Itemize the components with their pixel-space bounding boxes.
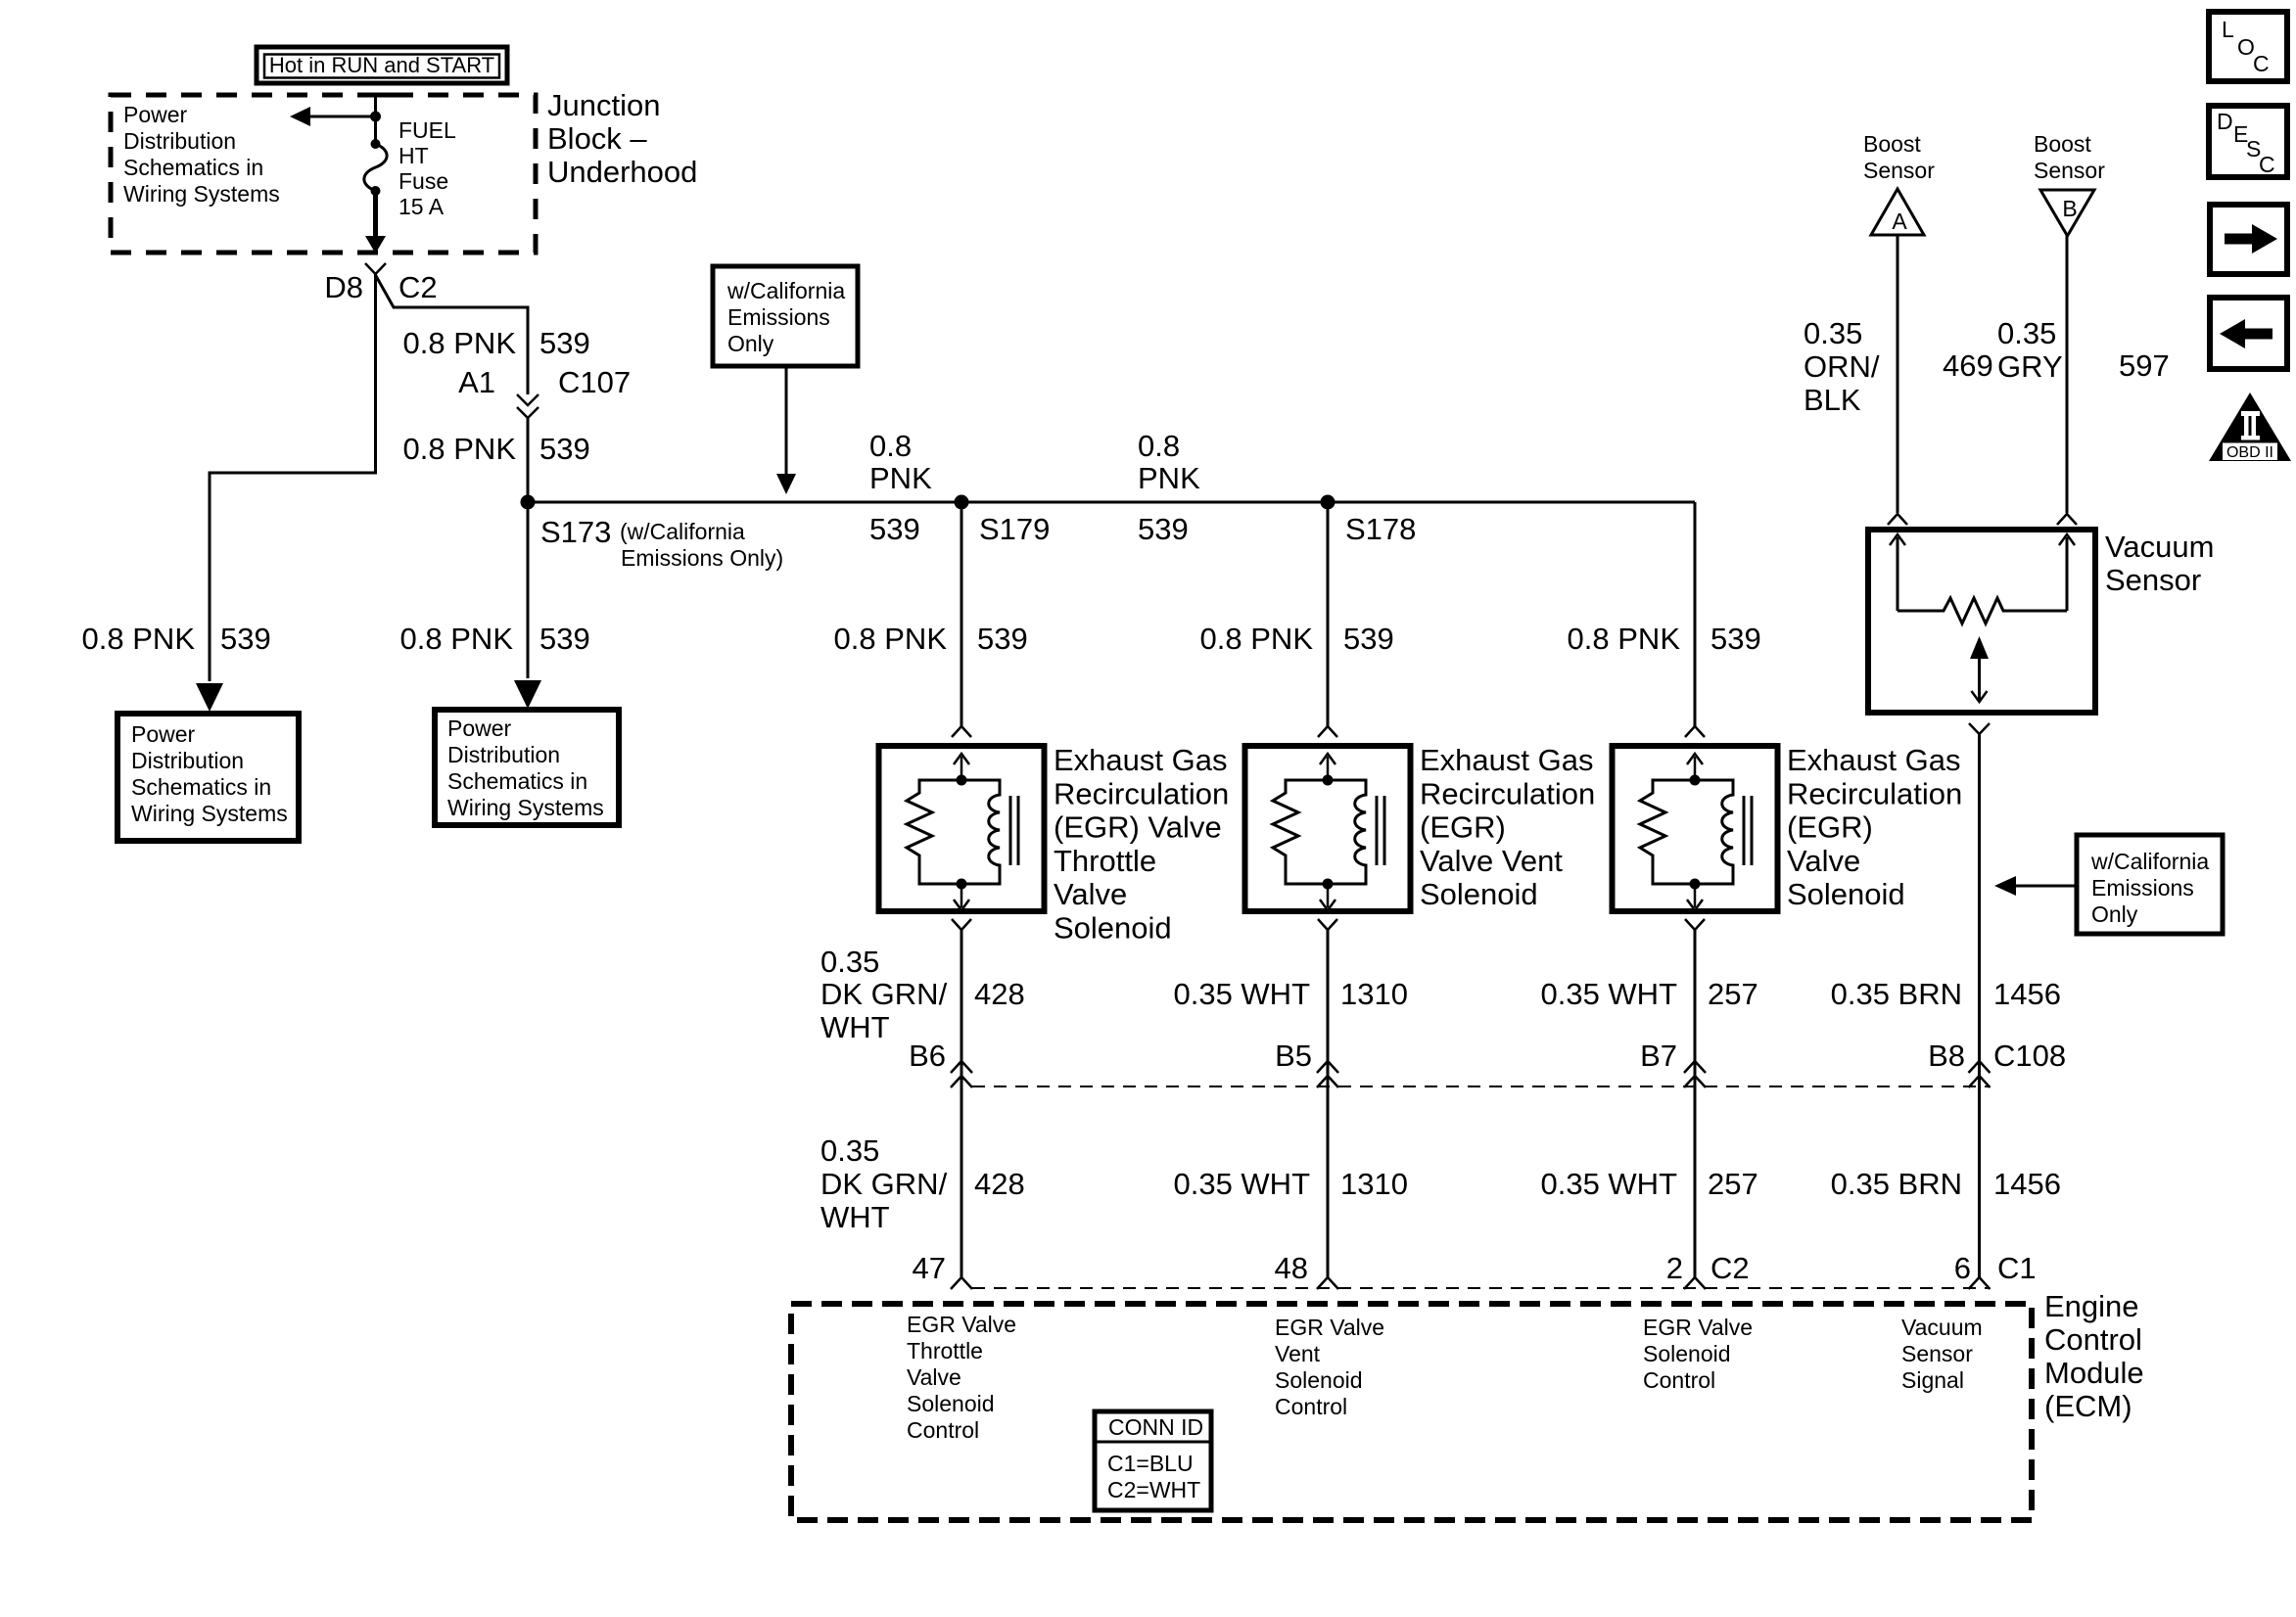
svg-text:Module: Module [2044, 1356, 2144, 1390]
svg-text:Boost: Boost [2034, 131, 2091, 157]
svg-text:A: A [1892, 208, 1907, 234]
svg-text:B6: B6 [909, 1039, 946, 1073]
svg-text:0.8: 0.8 [1138, 429, 1180, 463]
svg-text:C107: C107 [558, 365, 631, 399]
svg-text:539: 539 [1710, 622, 1761, 656]
svg-text:B7: B7 [1640, 1039, 1677, 1073]
svg-text:539: 539 [1138, 512, 1189, 546]
svg-text:Exhaust Gas: Exhaust Gas [1787, 743, 1960, 777]
svg-text:1310: 1310 [1340, 1167, 1408, 1201]
svg-text:0.8 PNK: 0.8 PNK [1568, 622, 1681, 656]
svg-text:OBD II: OBD II [2226, 444, 2273, 461]
svg-text:S173: S173 [540, 515, 611, 549]
svg-text:0.35: 0.35 [1804, 316, 1862, 350]
svg-text:0.8 PNK: 0.8 PNK [403, 326, 517, 360]
svg-text:C1: C1 [1997, 1251, 2037, 1285]
svg-text:Wiring Systems: Wiring Systems [123, 181, 280, 207]
svg-text:C: C [2259, 152, 2275, 177]
svg-text:539: 539 [977, 622, 1028, 656]
svg-text:Recirculation: Recirculation [1420, 776, 1595, 810]
svg-text:469: 469 [1943, 348, 1993, 383]
svg-text:Control: Control [1643, 1367, 1715, 1393]
svg-text:C1=BLU: C1=BLU [1107, 1451, 1194, 1476]
svg-text:Block –: Block – [547, 121, 647, 156]
svg-text:Distribution: Distribution [123, 128, 236, 154]
svg-text:Vacuum: Vacuum [2105, 530, 2214, 564]
svg-text:Only: Only [2091, 901, 2138, 927]
svg-text:15 A: 15 A [398, 194, 445, 219]
svg-text:Underhood: Underhood [547, 155, 697, 189]
svg-text:0.8: 0.8 [869, 429, 912, 463]
svg-text:C2=WHT: C2=WHT [1107, 1477, 1200, 1502]
svg-text:0.35: 0.35 [1997, 316, 2056, 350]
svg-text:Vent: Vent [1275, 1341, 1321, 1366]
svg-text:Exhaust Gas: Exhaust Gas [1054, 743, 1227, 777]
svg-text:Sensor: Sensor [1863, 158, 1935, 183]
svg-text:B: B [2062, 196, 2077, 221]
svg-text:Valve: Valve [1787, 844, 1860, 878]
svg-text:EGR Valve: EGR Valve [1643, 1315, 1753, 1340]
svg-text:Signal: Signal [1901, 1367, 1964, 1393]
svg-text:6: 6 [1954, 1251, 1971, 1285]
svg-text:Schematics in: Schematics in [123, 155, 263, 180]
svg-text:C2: C2 [398, 270, 438, 304]
svg-text:Schematics in: Schematics in [447, 768, 587, 794]
svg-text:Sensor: Sensor [2105, 563, 2201, 597]
svg-text:Sensor: Sensor [2034, 158, 2105, 183]
svg-text:428: 428 [974, 1167, 1025, 1201]
svg-text:BLK: BLK [1804, 383, 1861, 417]
svg-text:WHT: WHT [820, 1200, 890, 1234]
svg-text:Schematics in: Schematics in [131, 774, 271, 800]
svg-text:ORN/: ORN/ [1804, 349, 1880, 384]
svg-text:EGR Valve: EGR Valve [907, 1312, 1016, 1337]
svg-text:539: 539 [539, 622, 590, 656]
svg-text:Solenoid: Solenoid [1054, 911, 1172, 946]
svg-text:0.8 PNK: 0.8 PNK [400, 622, 514, 656]
svg-text:0.35 WHT: 0.35 WHT [1173, 1167, 1310, 1201]
svg-text:FUEL: FUEL [398, 117, 456, 143]
svg-text:C: C [2253, 51, 2270, 76]
svg-text:w/California: w/California [726, 278, 845, 303]
svg-text:S179: S179 [979, 512, 1050, 546]
svg-text:Wiring Systems: Wiring Systems [447, 795, 604, 820]
svg-text:539: 539 [220, 622, 271, 656]
svg-text:257: 257 [1708, 977, 1758, 1011]
svg-text:EGR Valve: EGR Valve [1275, 1315, 1384, 1340]
svg-text:0.35 WHT: 0.35 WHT [1540, 1167, 1677, 1201]
svg-text:B5: B5 [1275, 1039, 1312, 1073]
svg-text:Valve: Valve [907, 1364, 961, 1390]
svg-text:47: 47 [913, 1251, 946, 1285]
svg-text:Distribution: Distribution [131, 748, 244, 773]
svg-text:Throttle: Throttle [1054, 844, 1156, 878]
svg-text:1456: 1456 [1993, 1167, 2061, 1201]
svg-text:0.35 WHT: 0.35 WHT [1540, 977, 1677, 1011]
svg-text:CONN ID: CONN ID [1108, 1414, 1203, 1440]
svg-text:428: 428 [974, 977, 1025, 1011]
svg-text:Distribution: Distribution [447, 742, 560, 767]
svg-text:Solenoid: Solenoid [907, 1391, 995, 1416]
svg-text:Power: Power [123, 102, 188, 127]
svg-text:(EGR): (EGR) [1787, 810, 1873, 845]
svg-text:539: 539 [869, 512, 920, 546]
svg-text:Control: Control [2044, 1322, 2142, 1357]
svg-text:539: 539 [539, 326, 590, 360]
svg-text:Boost: Boost [1863, 131, 1921, 157]
svg-text:539: 539 [1343, 622, 1394, 656]
svg-text:Recirculation: Recirculation [1787, 776, 1962, 810]
svg-text:0.8 PNK: 0.8 PNK [403, 432, 517, 466]
svg-text:Solenoid: Solenoid [1420, 877, 1538, 911]
svg-text:Recirculation: Recirculation [1054, 776, 1229, 810]
svg-text:L: L [2222, 17, 2234, 42]
svg-text:257: 257 [1708, 1167, 1758, 1201]
svg-text:Solenoid: Solenoid [1643, 1341, 1731, 1366]
svg-text:PNK: PNK [869, 461, 932, 495]
svg-text:0.35: 0.35 [820, 945, 879, 979]
svg-text:DK GRN/: DK GRN/ [820, 1167, 948, 1201]
svg-text:(EGR): (EGR) [1420, 810, 1506, 845]
svg-text:48: 48 [1275, 1251, 1308, 1285]
svg-text:Emissions: Emissions [2091, 875, 2194, 901]
svg-text:D8: D8 [324, 270, 363, 304]
svg-text:Exhaust Gas: Exhaust Gas [1420, 743, 1593, 777]
svg-text:0.35 WHT: 0.35 WHT [1173, 977, 1310, 1011]
svg-text:w/California: w/California [2090, 849, 2209, 874]
svg-text:Only: Only [727, 331, 774, 356]
svg-text:2: 2 [1666, 1251, 1683, 1285]
svg-text:(w/California: (w/California [620, 519, 745, 544]
svg-text:Control: Control [1275, 1394, 1347, 1419]
svg-text:Hot in RUN and START: Hot in RUN and START [269, 53, 494, 77]
svg-text:Emissions: Emissions [727, 304, 830, 330]
svg-text:B8: B8 [1928, 1039, 1965, 1073]
svg-text:1310: 1310 [1340, 977, 1408, 1011]
svg-text:0.8 PNK: 0.8 PNK [82, 622, 196, 656]
svg-text:(EGR) Valve: (EGR) Valve [1054, 810, 1222, 845]
svg-text:C2: C2 [1710, 1251, 1750, 1285]
svg-text:Fuse: Fuse [398, 168, 448, 194]
svg-text:0.8 PNK: 0.8 PNK [1200, 622, 1314, 656]
svg-text:Solenoid: Solenoid [1787, 877, 1905, 911]
svg-text:Power: Power [447, 716, 512, 741]
svg-text:DK GRN/: DK GRN/ [820, 977, 948, 1011]
svg-text:1456: 1456 [1993, 977, 2061, 1011]
svg-text:Vacuum: Vacuum [1901, 1315, 1983, 1340]
svg-text:Sensor: Sensor [1901, 1341, 1973, 1366]
svg-text:A1: A1 [458, 365, 495, 399]
svg-text:539: 539 [539, 432, 590, 466]
svg-text:Throttle: Throttle [907, 1338, 983, 1363]
svg-text:Solenoid: Solenoid [1275, 1367, 1363, 1393]
svg-text:0.35 BRN: 0.35 BRN [1831, 977, 1962, 1011]
svg-text:Wiring Systems: Wiring Systems [131, 801, 288, 826]
svg-text:S178: S178 [1345, 512, 1416, 546]
svg-text:PNK: PNK [1138, 461, 1200, 495]
svg-text:(ECM): (ECM) [2044, 1389, 2132, 1423]
svg-text:Engine: Engine [2044, 1289, 2139, 1323]
svg-text:GRY: GRY [1997, 349, 2063, 384]
svg-text:Junction: Junction [547, 88, 660, 122]
svg-text:0.35: 0.35 [820, 1133, 879, 1168]
svg-text:0.8 PNK: 0.8 PNK [834, 622, 948, 656]
svg-text:597: 597 [2119, 348, 2170, 383]
svg-text:WHT: WHT [820, 1010, 890, 1044]
svg-text:Emissions Only): Emissions Only) [621, 545, 783, 571]
svg-text:Control: Control [907, 1417, 979, 1443]
svg-text:Valve Vent: Valve Vent [1420, 844, 1563, 878]
svg-text:0.35 BRN: 0.35 BRN [1831, 1167, 1962, 1201]
svg-text:Power: Power [131, 721, 196, 747]
svg-text:HT: HT [398, 143, 429, 168]
svg-text:Valve: Valve [1054, 877, 1127, 911]
svg-text:C108: C108 [1993, 1039, 2066, 1073]
svg-text:D: D [2217, 109, 2233, 134]
